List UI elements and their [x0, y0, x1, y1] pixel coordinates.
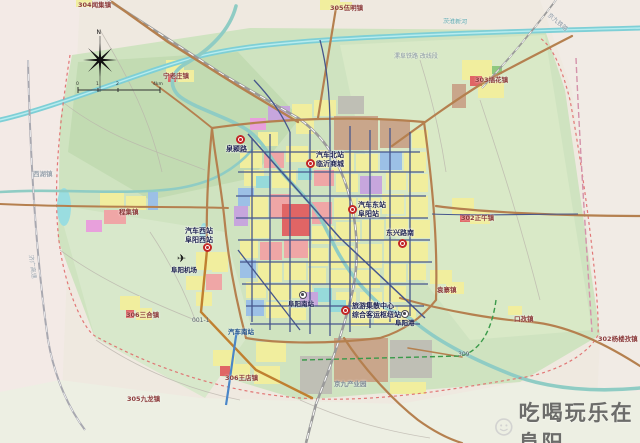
airport-icon: ✈ — [177, 253, 186, 264]
watermark-logo-icon — [494, 414, 514, 440]
town-label-12: 302杨楼孜镇 — [598, 336, 638, 343]
road-label-4: 001-1 — [192, 318, 209, 324]
fuyang-south-rail-label: 阜阳南站 — [288, 301, 314, 308]
town-label-9: 306王店镇 — [225, 375, 258, 382]
road-label-5: 309 — [458, 352, 469, 358]
town-label-14: 京九产业园 — [334, 381, 367, 388]
town-label-8: 306三合镇 — [126, 312, 159, 319]
road-label-1: 茨淮新河 — [443, 19, 467, 26]
town-label-0: 304闻集镇 — [78, 2, 111, 9]
watermark-text: 吃喝玩乐在阜阳 — [519, 397, 640, 443]
fuyang-planning-map: N 0 1 2 4km 泉颍路汽车北站临沂商城汽车东站阜阳站东兴路南汽车西站阜阳… — [0, 0, 640, 443]
town-label-10: 305九龙镇 — [127, 396, 160, 403]
road-label-2: 京九铁路 — [546, 13, 568, 33]
map-label-overlay: 泉颍路汽车北站临沂商城汽车东站阜阳站东兴路南汽车西站阜阳西站旅游集散中心综合客运… — [0, 0, 640, 443]
station-label-qiche-beizhan: 汽车北站临沂商城 — [316, 151, 344, 170]
airport-label: 阜阳机场 — [171, 267, 197, 274]
station-label-south-hub: 旅游集散中心综合客运枢纽站 — [352, 302, 401, 321]
fuyang-port-label: 阜阳港 — [395, 320, 415, 327]
fuyang-port-icon — [401, 310, 409, 318]
road-label-0: 漯阜铁路 改线段 — [394, 54, 438, 60]
town-label-2: 宁老庄镇 — [163, 73, 189, 80]
town-label-7: 西湖镇 — [33, 171, 53, 178]
station-marker-qiche-dongzhan — [348, 205, 357, 214]
station-marker-qiche-beizhan — [306, 159, 315, 168]
town-label-1: 305伍明镇 — [330, 5, 363, 12]
road-label-3: 济广高速 — [27, 255, 36, 280]
station-label-qiche-dongzhan: 汽车东站阜阳站 — [358, 201, 386, 220]
station-marker-south-hub — [341, 306, 350, 315]
station-label-dongxing-lu-nan: 东兴路南 — [386, 229, 414, 238]
station-marker-quan-ying-lu — [236, 135, 245, 144]
town-label-3: 303插花镇 — [475, 77, 508, 84]
town-label-5: 袁寨镇 — [437, 287, 457, 294]
town-label-11: 口孜镇 — [514, 316, 534, 323]
town-label-4: 302正午镇 — [461, 215, 494, 222]
station-label-qiche-xizhan: 汽车西站阜阳西站 — [185, 227, 213, 246]
station-label-quan-ying-lu: 泉颍路 — [226, 145, 247, 154]
station-marker-dongxing-lu-nan — [398, 239, 407, 248]
fuyang-south-rail-icon — [299, 291, 307, 299]
town-label-6: 程集镇 — [119, 209, 139, 216]
watermark: 吃喝玩乐在阜阳 — [494, 397, 640, 443]
town-label-13: 汽车南站 — [228, 329, 254, 336]
